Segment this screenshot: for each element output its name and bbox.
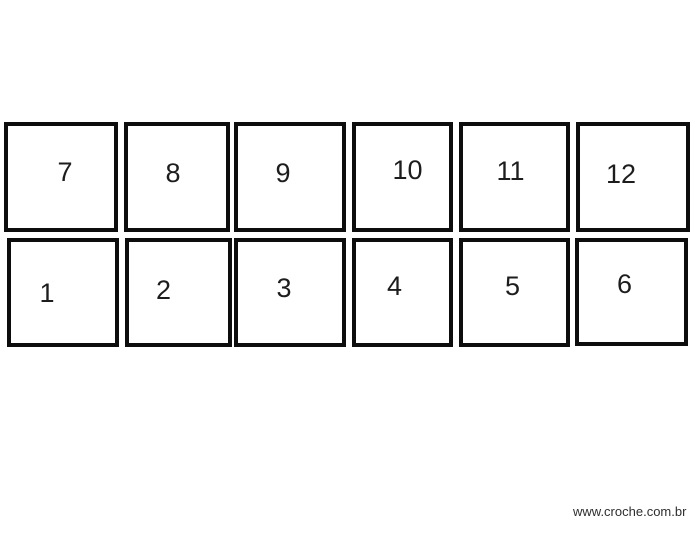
square-number: 8: [165, 160, 180, 187]
square-number: 4: [387, 273, 402, 300]
square-7: 7: [4, 122, 118, 232]
square-9: 9: [234, 122, 346, 232]
square-number: 11: [496, 158, 524, 185]
square-number: 6: [617, 271, 632, 298]
square-number: 10: [392, 157, 422, 184]
square-1: 1: [7, 238, 119, 347]
watermark-url: www.croche.com.br: [573, 505, 686, 519]
square-number: 3: [276, 275, 291, 302]
square-2: 2: [125, 238, 232, 347]
square-12: 12: [576, 122, 690, 232]
numbered-squares-diagram: 7 8 9 10 11 12 1 2 3 4 5 6 www.croche.co…: [0, 0, 698, 540]
square-8: 8: [124, 122, 230, 232]
square-number: 2: [156, 277, 171, 304]
square-10: 10: [352, 122, 453, 232]
square-11: 11: [459, 122, 570, 232]
square-number: 5: [505, 273, 520, 300]
square-number: 9: [275, 160, 290, 187]
square-number: 7: [57, 159, 72, 186]
square-6: 6: [575, 238, 688, 346]
square-number: 12: [606, 161, 636, 188]
square-5: 5: [459, 238, 570, 347]
square-4: 4: [352, 238, 453, 347]
square-number: 1: [39, 280, 54, 307]
square-3: 3: [234, 238, 346, 347]
